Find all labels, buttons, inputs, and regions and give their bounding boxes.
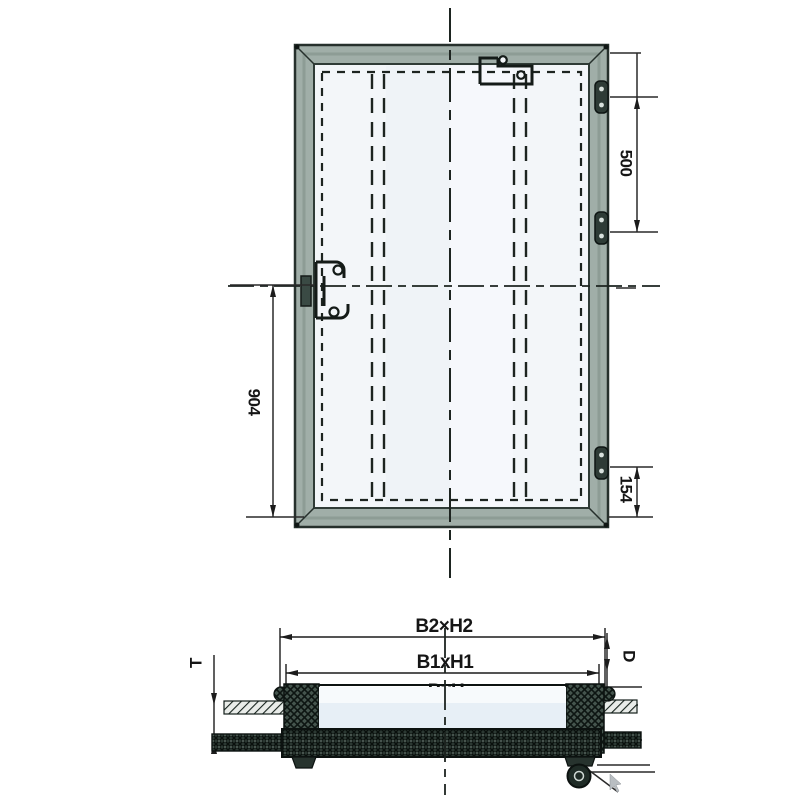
dim-500-label: 500 bbox=[617, 150, 636, 177]
dim-b2h2-label: B2×H2 bbox=[415, 616, 472, 637]
section-door-leaf bbox=[282, 685, 601, 768]
dim-d-label: D bbox=[620, 650, 639, 662]
dim-904-label: 904 bbox=[245, 389, 264, 417]
dim-154-label: 154 bbox=[617, 476, 636, 504]
cursor-arrow bbox=[610, 774, 621, 792]
hinge-bottom bbox=[595, 447, 608, 479]
hinge-middle bbox=[595, 212, 608, 244]
dimension-b1h1: B1xH1 bbox=[286, 652, 599, 676]
front-view: 500 154 904 bbox=[228, 8, 660, 578]
dimension-500: 500 bbox=[610, 53, 658, 288]
technical-drawing-page: 500 154 904 bbox=[0, 0, 800, 800]
section-view: B2×H2 B1xH1 BxH D bbox=[187, 616, 656, 795]
dimension-154: 154 bbox=[608, 467, 653, 517]
dimension-b2h2: B2×H2 bbox=[280, 616, 605, 640]
dim-t-label: T bbox=[187, 657, 206, 668]
door-technical-drawing: 500 154 904 bbox=[0, 0, 800, 800]
hinge-top bbox=[595, 81, 608, 113]
bulkhead-right bbox=[604, 700, 641, 748]
